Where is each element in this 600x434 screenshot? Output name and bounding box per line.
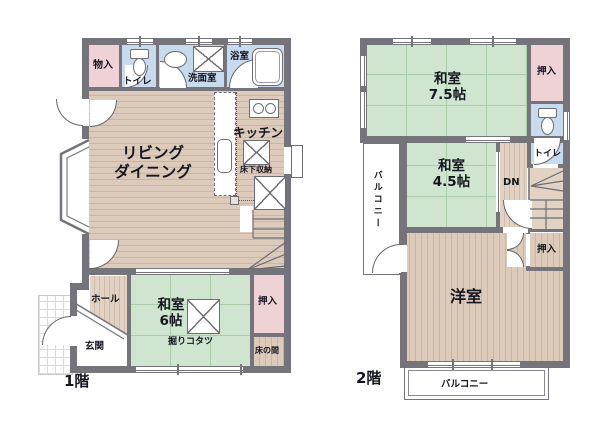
window xyxy=(361,92,366,128)
kitchen-counter xyxy=(214,92,236,196)
floorplan-canvas: 物入 トイレ 洗面室 浴室 リビング ダイニング キッチン 床下収納 ホール 玄… xyxy=(0,0,600,434)
label-underfloor-storage: 床下収納 xyxy=(240,165,272,175)
label-kotatsu: 掘りコタツ xyxy=(168,337,213,348)
door-gap xyxy=(526,234,530,266)
label-washitsu-4-5: 和室 4.5帖 xyxy=(413,158,490,190)
bay-window xyxy=(54,136,90,238)
window xyxy=(361,56,366,86)
label-western-room: 洋室 xyxy=(450,287,482,306)
label-floor-2: 2階 xyxy=(356,369,381,387)
stair-storage-icon xyxy=(254,176,286,210)
bay-window-kitchen xyxy=(291,145,303,178)
window xyxy=(564,112,569,140)
toilet-icon xyxy=(541,117,554,135)
door-gap xyxy=(82,99,89,126)
sink-icon xyxy=(164,51,187,68)
underfloor-storage-icon xyxy=(243,140,270,165)
label-bathroom: 浴室 xyxy=(230,51,249,62)
label-entrance: 玄関 xyxy=(85,341,104,352)
label-washroom: 洗面室 xyxy=(188,73,217,84)
sliding-door xyxy=(136,269,229,274)
label-oshiire-2f-mid: 押入 xyxy=(537,244,556,255)
label-toilet-2f: トイレ xyxy=(534,149,561,160)
label-toilet-1f: トイレ xyxy=(123,76,152,87)
cabinet-icon xyxy=(193,46,224,72)
stairs-1f xyxy=(238,208,288,270)
stairs-2f xyxy=(530,168,563,229)
window-sliding xyxy=(136,367,243,372)
label-living-dining: リビング ダイニング xyxy=(98,144,208,181)
door-gap xyxy=(400,245,407,272)
sliding-door xyxy=(496,152,500,212)
toilet-icon xyxy=(133,58,146,76)
label-washitsu-6: 和室 6帖 xyxy=(150,297,192,329)
label-down: DN xyxy=(503,177,520,189)
label-balcony-left: バルコニー xyxy=(371,170,382,230)
window-gap xyxy=(284,147,291,174)
label-oshiire-1f: 押入 xyxy=(258,296,277,307)
label-floor-1: 1階 xyxy=(64,372,89,390)
floor-hatch xyxy=(230,196,239,205)
label-storage: 物入 xyxy=(93,60,113,72)
stove-icon xyxy=(249,99,279,118)
label-hall: ホール xyxy=(91,294,120,305)
sliding-door xyxy=(466,137,510,142)
label-balcony-bottom: バルコニー xyxy=(441,379,488,390)
label-oshiire-2f-top: 押入 xyxy=(537,66,556,77)
label-tokonoma: 床の間 xyxy=(255,346,279,356)
window-sliding xyxy=(428,362,520,367)
label-washitsu-7-5: 和室 7.5帖 xyxy=(405,71,490,103)
label-kitchen: キッチン xyxy=(233,125,283,140)
door-arc xyxy=(56,99,83,126)
kitchen-boundary xyxy=(236,92,237,200)
bathtub-icon xyxy=(252,48,283,86)
